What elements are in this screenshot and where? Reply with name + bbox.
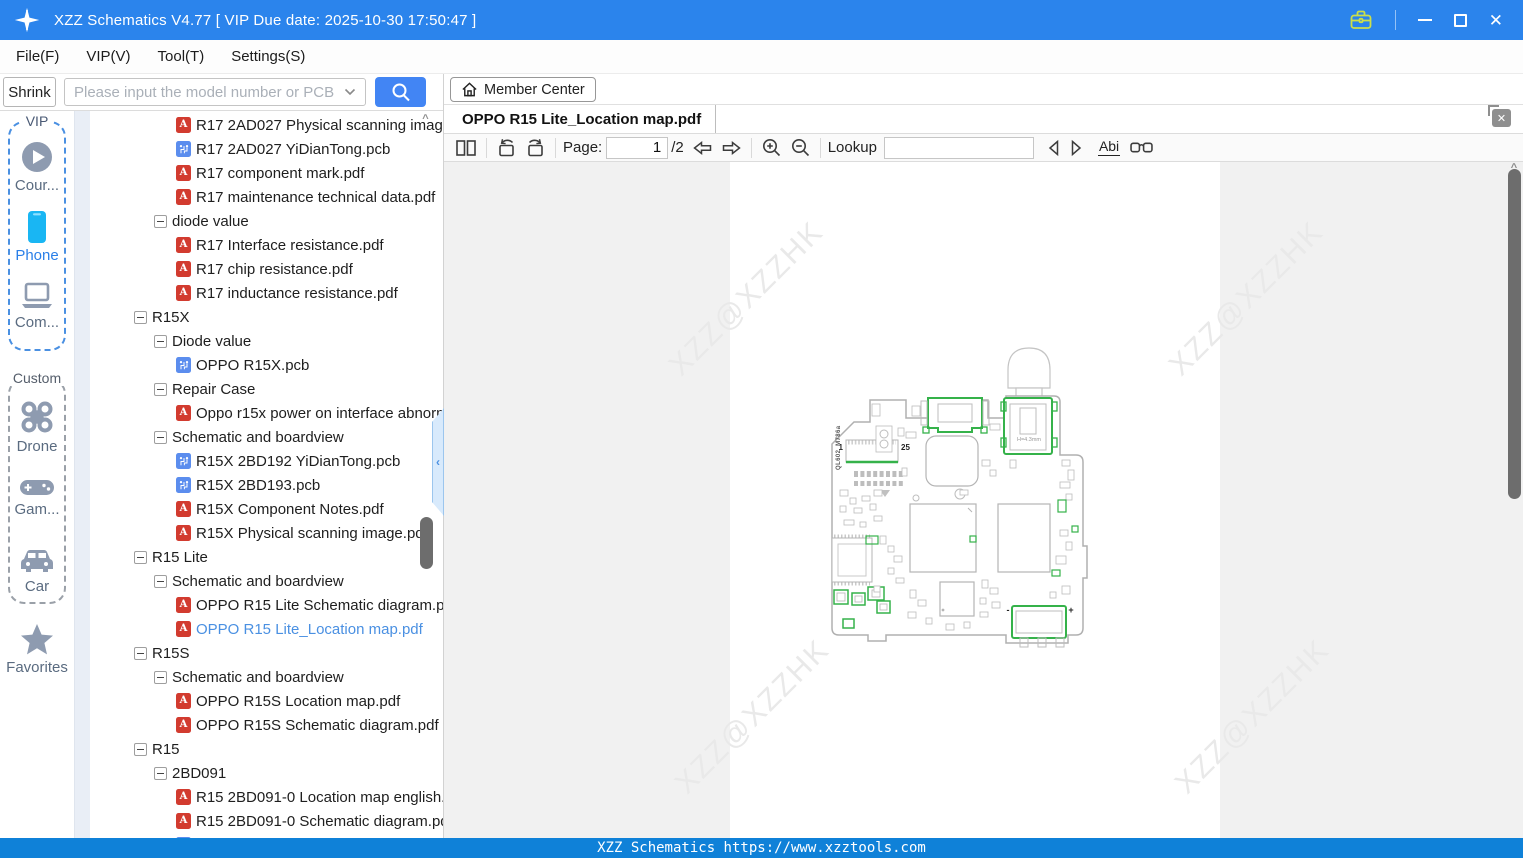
tree-item[interactable]: R15X Component Notes.pdf	[90, 497, 443, 521]
app-logo-icon	[12, 5, 42, 35]
tree-item[interactable]: R17 Interface resistance.pdf	[90, 233, 443, 257]
tree-item-label: Oppo r15x power on interface abnormal.pd…	[196, 405, 443, 422]
tree-item-label: OPPO R15S Location map.pdf	[196, 693, 400, 710]
page-label: Page:	[563, 139, 602, 156]
collapse-toggle-icon[interactable]	[154, 767, 167, 780]
collapse-toggle-icon[interactable]	[154, 215, 167, 228]
rotate-right-icon[interactable]	[521, 136, 550, 160]
tree-item[interactable]: Schematic and boardview	[90, 425, 443, 449]
car-icon	[0, 547, 74, 575]
previous-page-icon[interactable]	[688, 136, 717, 160]
tree-item[interactable]: R15S	[90, 641, 443, 665]
page-total: /2	[671, 139, 684, 156]
document-tab-label: OPPO R15 Lite_Location map.pdf	[462, 111, 701, 128]
tree-item-label: R15 Lite	[152, 549, 208, 566]
play-circle-icon	[0, 140, 74, 174]
collapse-toggle-icon[interactable]	[154, 431, 167, 444]
pdf-file-icon	[176, 693, 191, 709]
home-icon	[461, 81, 478, 98]
tree-item-label: R17 component mark.pdf	[196, 165, 364, 182]
tree-item[interactable]: R15X 2BD192 YiDianTong.pcb	[90, 449, 443, 473]
battery-minus-label: -	[1007, 605, 1010, 615]
two-page-view-icon[interactable]	[451, 136, 481, 160]
pdf-file-icon	[176, 189, 191, 205]
jack-height-label: H=4.3mm	[1017, 437, 1041, 443]
tree-item-label: R17 2AD027 YiDianTong.pcb	[196, 141, 390, 158]
menu-tool[interactable]: Tool(T)	[158, 48, 205, 65]
pdf-file-icon	[176, 789, 191, 805]
tree-item-label: 2BD091	[172, 765, 226, 782]
pcb-file-icon	[176, 141, 191, 157]
drone-icon	[0, 399, 74, 435]
tree-item[interactable]: R15 2BD091-0 Schematic diagram.pdf	[90, 809, 443, 833]
tree-item[interactable]: Repair Case	[90, 377, 443, 401]
zoom-out-icon[interactable]	[786, 136, 815, 160]
titlebar-divider	[1395, 10, 1396, 30]
tree-item[interactable]: OPPO R15S Location map.pdf	[90, 689, 443, 713]
pdf-file-icon	[176, 501, 191, 517]
scroll-up-arrow-icon[interactable]	[419, 113, 432, 125]
collapse-toggle-icon[interactable]	[134, 647, 147, 660]
tree-item[interactable]: R17 chip resistance.pdf	[90, 257, 443, 281]
sidebar-item-computer[interactable]: Com...	[0, 281, 74, 331]
close-button[interactable]: ✕	[1489, 12, 1503, 29]
sidebar-item-phone[interactable]: Phone	[0, 210, 74, 264]
tree-item[interactable]: R17 inductance resistance.pdf	[90, 281, 443, 305]
tree-item[interactable]: R15X	[90, 305, 443, 329]
sidebar-item-label: Phone	[0, 247, 74, 264]
tree-item-label: OPPO R15 Lite_Location map.pdf	[196, 621, 423, 638]
page-number-input[interactable]	[606, 137, 668, 159]
tree-item-label: OPPO R15S Schematic diagram.pdf	[196, 717, 439, 734]
star-icon	[0, 622, 74, 656]
tree-item-label: Schematic and boardview	[172, 573, 344, 590]
file-tree: R17 2AD027 Physical scanning image.pdfR1…	[90, 111, 443, 838]
tree-scrollbar-thumb[interactable]	[420, 517, 433, 569]
menu-file[interactable]: File(F)	[16, 48, 59, 65]
sidebar-item-label: Com...	[0, 314, 74, 331]
pdf-toolbar: Page: /2 Lookup Abi	[444, 133, 1523, 162]
tree-item[interactable]: 2BD091	[90, 761, 443, 785]
find-previous-icon[interactable]	[1042, 136, 1065, 160]
sidebar-item-label: Drone	[0, 438, 74, 455]
tree-item-label: diode value	[172, 213, 249, 230]
collapse-toggle-icon[interactable]	[134, 743, 147, 756]
lookup-input[interactable]	[884, 137, 1034, 159]
sidebar-item-favorites[interactable]: Favorites	[0, 622, 74, 676]
rotate-left-icon[interactable]	[492, 136, 521, 160]
tree-item-label: R15	[152, 741, 180, 758]
pdf-viewport[interactable]: XZZ@XZZHK XZZ@XZZHK XZZ@XZZHK XZZ@XZZHK …	[444, 162, 1523, 838]
pdf-file-icon	[176, 237, 191, 253]
gamepad-icon	[0, 476, 74, 498]
lookup-label: Lookup	[828, 139, 877, 156]
minimize-button[interactable]	[1418, 19, 1432, 21]
pdf-file-icon	[176, 405, 191, 421]
reading-glasses-icon[interactable]	[1126, 136, 1157, 160]
laptop-icon	[0, 281, 74, 311]
pcb-file-icon	[176, 357, 191, 373]
collapse-toggle-icon[interactable]	[134, 551, 147, 564]
tree-item[interactable]: R15 Lite	[90, 545, 443, 569]
pcb-file-icon	[176, 477, 191, 493]
member-center-button[interactable]: Member Center	[450, 77, 596, 102]
menu-vip[interactable]: VIP(V)	[86, 48, 130, 65]
custom-group-label: Custom	[10, 370, 64, 386]
tree-item-label: R17 2AD027 Physical scanning image.pdf	[196, 117, 443, 134]
search-button[interactable]	[375, 77, 426, 107]
tree-item[interactable]: diode value	[90, 209, 443, 233]
pdf-file-icon	[176, 525, 191, 541]
pdf-file-icon	[176, 717, 191, 733]
tree-item-label: Diode value	[172, 333, 251, 350]
tree-item[interactable]: Schematic and boardview	[90, 665, 443, 689]
shrink-button[interactable]: Shrink	[3, 77, 56, 107]
collapse-toggle-icon[interactable]	[134, 311, 147, 324]
status-bar: XZZ Schematics https://www.xzztools.com	[0, 838, 1523, 858]
tree-item[interactable]: R15	[90, 737, 443, 761]
pdf-file-icon	[176, 117, 191, 133]
tree-item-label: OPPO R15 Lite Schematic diagram.pdf	[196, 597, 443, 614]
tree-item[interactable]: OPPO R15S Schematic diagram.pdf	[90, 713, 443, 737]
search-input[interactable]	[64, 78, 366, 106]
tree-item-label: R17 inductance resistance.pdf	[196, 285, 398, 302]
match-case-button[interactable]: Abi	[1098, 139, 1120, 155]
tree-item-label: R15 2BD091-0 Location map english.pdf	[196, 789, 443, 806]
silkscreen-label: QL602_M786a	[836, 425, 842, 470]
viewer-scrollbar-thumb[interactable]	[1508, 169, 1521, 499]
tree-item-label: R17 Interface resistance.pdf	[196, 237, 384, 254]
sidebar-gutter	[74, 111, 90, 838]
tree-item-label: R15X 2BD192 YiDianTong.pcb	[196, 453, 400, 470]
battery-plus-label: +	[1068, 605, 1073, 615]
collapse-toggle-icon[interactable]	[154, 575, 167, 588]
sidebar-item-game[interactable]: Gam...	[0, 476, 74, 518]
tree-item-label: OPPO R15X.pcb	[196, 357, 309, 374]
search-icon	[390, 81, 412, 103]
collapse-toggle-icon[interactable]	[154, 671, 167, 684]
pdf-file-icon	[176, 621, 191, 637]
tree-item[interactable]: Oppo r15x power on interface abnormal.pd…	[90, 401, 443, 425]
tree-item-label: R15X 2BD193.pcb	[196, 477, 320, 494]
tree-item-label: R15X	[152, 309, 190, 326]
tree-item-label: R15 2BD091-0 Schematic diagram.pdf	[196, 813, 443, 830]
document-tab-bar: OPPO R15 Lite_Location map.pdf ✕	[444, 105, 1523, 133]
pdf-file-icon	[176, 597, 191, 613]
file-tree-panel: R17 2AD027 Physical scanning image.pdfR1…	[90, 111, 443, 838]
tree-item-label: R15X Physical scanning image.pdf	[196, 525, 428, 542]
tree-item[interactable]: R17 2AD027 YiDianTong.pcb	[90, 137, 443, 161]
tree-item[interactable]: R15X Physical scanning image.pdf	[90, 521, 443, 545]
maximize-button[interactable]	[1454, 14, 1467, 27]
chevron-down-icon[interactable]	[344, 88, 356, 96]
tree-item[interactable]: Schematic and boardview	[90, 569, 443, 593]
document-tab[interactable]: OPPO R15 Lite_Location map.pdf	[444, 105, 716, 133]
vip-group-label: VIP	[23, 113, 52, 129]
pin25-label: 25	[901, 443, 910, 452]
sidebar-item-car[interactable]: Car	[0, 547, 74, 595]
pdf-file-icon	[176, 261, 191, 277]
tree-item[interactable]: Diode value	[90, 329, 443, 353]
tree-item-label: R15S	[152, 645, 190, 662]
close-all-tabs-icon[interactable]: ✕	[1492, 109, 1511, 127]
pdf-file-icon	[176, 285, 191, 301]
tree-item[interactable]: R15 2BD091-0 Location map english.pdf	[90, 785, 443, 809]
pdf-file-icon	[176, 165, 191, 181]
collapse-toggle-icon[interactable]	[154, 383, 167, 396]
tree-item-label: R17 chip resistance.pdf	[196, 261, 353, 278]
tree-item-label: Repair Case	[172, 381, 255, 398]
menu-settings[interactable]: Settings(S)	[231, 48, 305, 65]
title-bar: XZZ Schematics V4.77 [ VIP Due date: 202…	[0, 0, 1523, 40]
sidebar-item-drone[interactable]: Drone	[0, 399, 74, 455]
tree-item[interactable]: R17 2AD027 Physical scanning image.pdf	[90, 113, 443, 137]
pcb-location-map-drawing: H=4.3mm 1 25 QL602_M786a	[810, 340, 1100, 660]
sidebar-item-label: Favorites	[0, 659, 74, 676]
smartphone-icon	[0, 210, 74, 244]
tree-item[interactable]: OPPO R15 Lite Schematic diagram.pdf	[90, 593, 443, 617]
next-page-icon[interactable]	[717, 136, 746, 160]
sidebar-item-course[interactable]: Cour...	[0, 140, 74, 194]
search-row: Shrink	[0, 74, 443, 111]
window-title: XZZ Schematics V4.77 [ VIP Due date: 202…	[54, 12, 476, 29]
menu-bar: File(F) VIP(V) Tool(T) Settings(S)	[0, 40, 1523, 74]
zoom-in-icon[interactable]	[757, 136, 786, 160]
tree-item[interactable]: OPPO R15 Lite_Location map.pdf	[90, 617, 443, 641]
collapse-toggle-icon[interactable]	[154, 335, 167, 348]
collapse-panel-handle[interactable]: ‹	[432, 408, 444, 516]
member-row: Member Center	[444, 74, 1523, 105]
status-text: XZZ Schematics https://www.xzztools.com	[597, 840, 926, 856]
tree-item-label: R17 maintenance technical data.pdf	[196, 189, 435, 206]
tree-item-label: Schematic and boardview	[172, 669, 344, 686]
sidebar-item-label: Cour...	[0, 177, 74, 194]
tree-item[interactable]: R17 maintenance technical data.pdf	[90, 185, 443, 209]
tree-item[interactable]: R17 component mark.pdf	[90, 161, 443, 185]
tree-item-label: Schematic and boardview	[172, 429, 344, 446]
license-briefcase-icon[interactable]	[1349, 9, 1373, 31]
category-sidebar: VIP Cour... Phone Com... Custom Drone Ga…	[0, 111, 90, 838]
find-next-icon[interactable]	[1065, 136, 1088, 160]
pcb-file-icon	[176, 453, 191, 469]
sidebar-item-label: Car	[0, 578, 74, 595]
sidebar-item-label: Gam...	[0, 501, 74, 518]
pdf-file-icon	[176, 813, 191, 829]
tree-item[interactable]: OPPO R15X.pcb	[90, 353, 443, 377]
member-center-label: Member Center	[484, 82, 585, 98]
tree-item[interactable]: R15X 2BD193.pcb	[90, 473, 443, 497]
tree-item-label: R15X Component Notes.pdf	[196, 501, 384, 518]
